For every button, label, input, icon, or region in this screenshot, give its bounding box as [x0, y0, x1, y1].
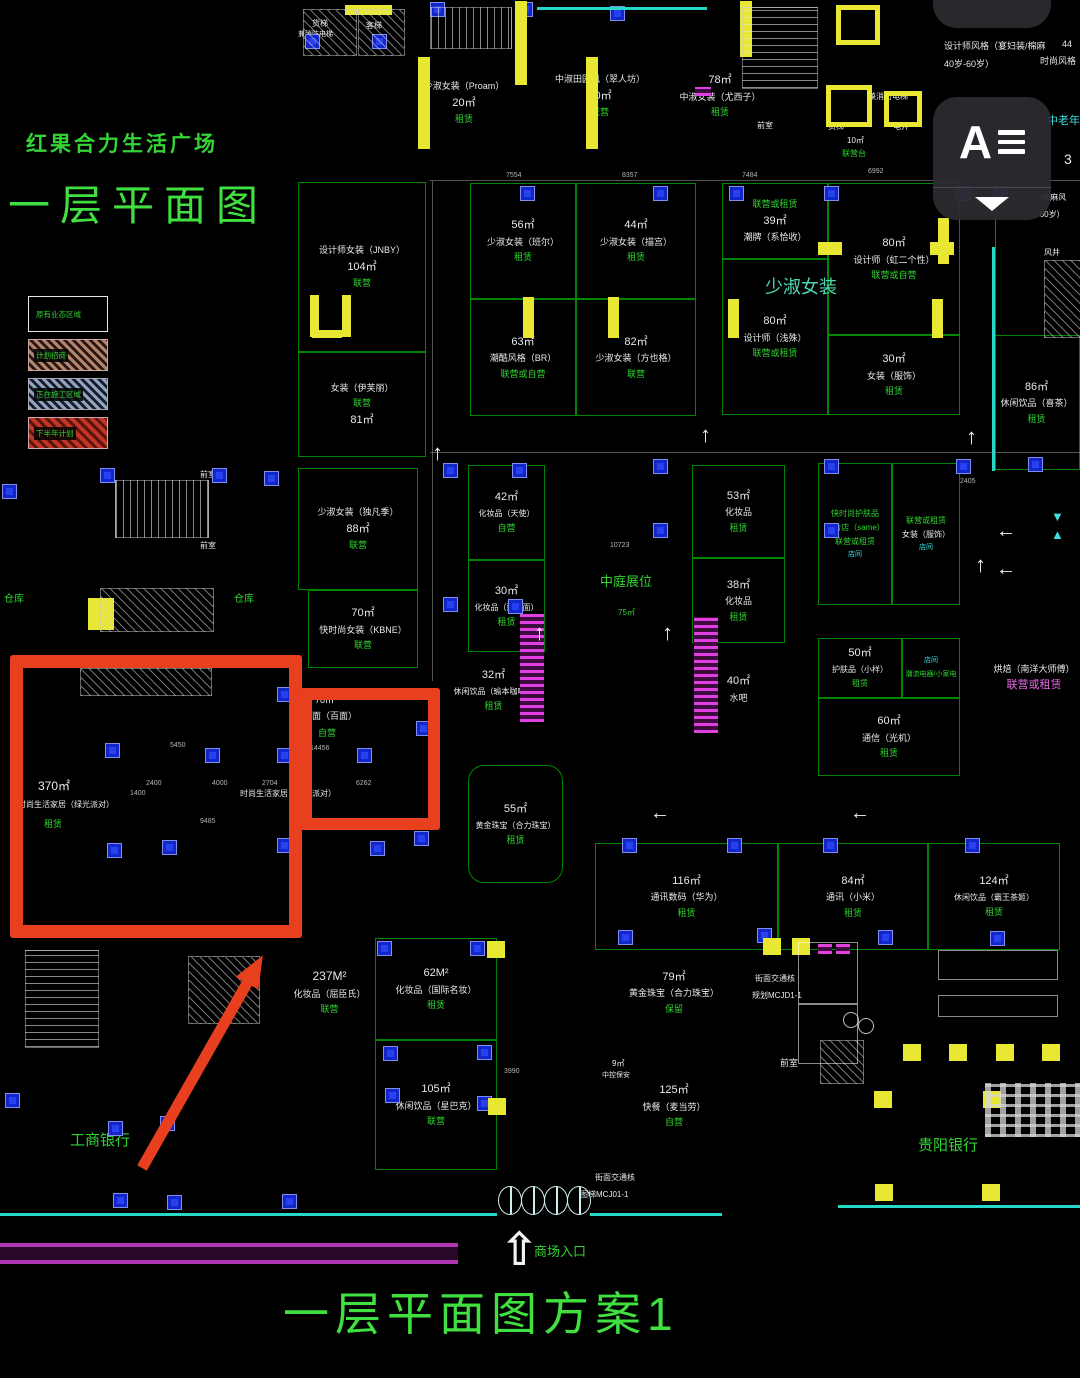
column-yellow [982, 1184, 1000, 1201]
plan-label: 联营台 [842, 150, 866, 159]
wall-segment [818, 242, 842, 255]
revolving-door [521, 1186, 545, 1215]
structural-column [653, 523, 668, 538]
plan-label: 仓库 [4, 594, 24, 605]
storefront-line [590, 1213, 722, 1216]
revolving-door [544, 1186, 568, 1215]
escalator [695, 87, 711, 96]
room: 联营或租赁女装（服饰）店间 [892, 463, 960, 605]
left-arrow-icon: ← [650, 802, 670, 825]
structural-column [470, 941, 485, 956]
up-arrow-icon: ↑ [966, 424, 977, 450]
plan-label: 街面交通核 [755, 975, 795, 984]
structural-column [160, 1116, 175, 1131]
fixture-outline [938, 995, 1058, 1017]
room: 79㎡黄金珠宝（合力珠宝）保留 [595, 945, 753, 1040]
column-yellow [488, 1098, 506, 1115]
room: 70㎡快时尚女装（KBNE）联营 [308, 590, 418, 668]
dimension-text: 7554 [506, 172, 522, 179]
plan-label: 仓库 [234, 594, 254, 605]
plan-label: 44 [1062, 40, 1072, 50]
room: 50㎡护肤品（小样）租赁 [818, 638, 902, 698]
structural-column [622, 838, 637, 853]
room: 42㎡化妆品（天使）自营 [468, 465, 545, 560]
dimension-text: 6992 [868, 168, 884, 175]
structural-column [2, 484, 17, 499]
hatched-area [430, 7, 512, 49]
wall-segment [932, 299, 943, 338]
legend-item: 下半年计划 [28, 417, 108, 449]
hatched-area [188, 956, 260, 1024]
legend: 原有业态区域计划招商正在施工区域下半年计划 [28, 296, 108, 456]
dimension-line [432, 181, 433, 681]
wall-segment [938, 218, 949, 264]
column-yellow [903, 1044, 921, 1061]
plan-label: 规划MCJD1-1 [752, 992, 802, 1001]
dimension-text: 2405 [960, 478, 976, 485]
hatched-area [985, 1083, 1080, 1137]
elevator-shaft [884, 91, 922, 127]
structural-column [618, 930, 633, 945]
plan-label: 40岁-60岁） [944, 60, 994, 70]
room: 82㎡少淑女装（方也格）联营 [576, 299, 696, 416]
up-arrow-icon: ↑ [432, 440, 443, 466]
column-yellow [949, 1044, 967, 1061]
room: 237M²化妆品（屈臣氏）联营 [282, 935, 377, 1050]
hatched-area [100, 588, 214, 632]
room: 55㎡黄金珠宝（合力珠宝）租赁 [468, 765, 563, 883]
structural-column [824, 523, 839, 538]
structural-column [167, 1195, 182, 1210]
fixture-outline [938, 950, 1058, 980]
wall-segment [515, 1, 527, 85]
room: 烘焙（南洋大师傅）联营或租赁 [988, 598, 1080, 758]
structural-column [1028, 457, 1043, 472]
legend-item: 原有业态区域 [28, 296, 108, 332]
wall-segment [586, 57, 598, 149]
plan-label: 设计师风格（宴妇装/棉麻 [944, 42, 1046, 52]
hatched-area [742, 7, 818, 89]
escalator [694, 617, 718, 733]
up-arrow-icon: ↑ [534, 620, 545, 646]
structural-column [5, 1093, 20, 1108]
left-arrow-icon: ← [850, 802, 870, 825]
structural-column [823, 838, 838, 853]
structural-column [512, 463, 527, 478]
room: 84㎡通讯（小米）租赁 [778, 843, 928, 950]
hatched-area [115, 480, 209, 538]
plan-label: ▼ [1051, 510, 1064, 524]
room: 44㎡少淑女装（描宫）租赁 [576, 183, 696, 299]
room: 53㎡化妆品租赁 [692, 465, 785, 558]
elevator-shaft [836, 5, 880, 45]
fixture-circle [843, 1012, 859, 1028]
room: 中淑田园风（翠人坊）60㎡联营 [530, 40, 670, 152]
structural-column [729, 186, 744, 201]
structural-column [477, 1045, 492, 1060]
elevator-shaft [826, 85, 872, 127]
entrance-arrow-icon: ⇧ [500, 1222, 539, 1276]
chevron-down-icon [975, 197, 1009, 211]
structural-column [212, 468, 227, 483]
plan-label: 前室 [757, 122, 773, 131]
plan-label: 前室 [200, 542, 216, 551]
wall-segment [728, 299, 739, 338]
plan-label: 少淑女装 [765, 278, 837, 298]
structural-column [443, 463, 458, 478]
plan-label: 时尚风格（ [1040, 57, 1080, 67]
column-yellow [1042, 1044, 1060, 1061]
dimension-text: 7484 [742, 172, 758, 179]
structural-column [264, 471, 279, 486]
structural-column [965, 838, 980, 853]
structural-column [383, 1046, 398, 1061]
hatched-area [25, 950, 99, 1048]
hatched-area [1044, 260, 1080, 338]
reader-tool-button-partial[interactable] [933, 0, 1051, 28]
plan-label: 中老年 [1047, 115, 1080, 127]
scheme-title: 一层平面图方案1 [283, 1278, 679, 1344]
text-settings-icon[interactable]: A [933, 97, 1051, 188]
plan-label: 商场入口 [534, 1245, 586, 1259]
red-highlight-box-large [10, 655, 302, 938]
storefront-line [838, 1205, 1080, 1208]
structural-column [443, 597, 458, 612]
plan-label: 前室 [780, 1059, 798, 1069]
project-title: 红果合力生活广场 [26, 128, 218, 158]
structural-column [414, 831, 429, 846]
structural-column [878, 930, 893, 945]
column-yellow [874, 1091, 892, 1108]
wall-segment [312, 330, 342, 338]
dimension-line [995, 180, 996, 470]
plan-label: 街面交通核 [595, 1174, 635, 1183]
structural-column [824, 186, 839, 201]
reader-tool-button[interactable]: A [933, 97, 1051, 220]
dimension-text: 8357 [622, 172, 638, 179]
plan-label: ▲ [1051, 528, 1064, 542]
dimension-line [430, 452, 1080, 453]
storefront-line [0, 1213, 497, 1216]
structural-column [990, 931, 1005, 946]
wall-segment [608, 297, 619, 338]
structural-column [508, 599, 523, 614]
legend-item: 正在施工区域 [28, 378, 108, 410]
hatched-area [358, 9, 405, 56]
up-arrow-icon: ↑ [662, 620, 673, 646]
structural-column [520, 186, 535, 201]
structural-column [108, 1121, 123, 1136]
red-highlight-box-small [300, 688, 440, 830]
plan-label: 中庭展位 [600, 575, 652, 589]
revolving-door [498, 1186, 522, 1215]
plan-label: 中控保安 [602, 1072, 630, 1080]
structural-column [113, 1193, 128, 1208]
plan-label: 10㎡ [847, 137, 864, 146]
wall-segment [342, 295, 351, 337]
structural-column [100, 468, 115, 483]
structural-column [370, 841, 385, 856]
structural-column [727, 838, 742, 853]
room: 店间潮流电器/小家电 [902, 638, 960, 698]
room: 86㎡休闲饮品（喜茶）租赁 [993, 335, 1080, 470]
structural-column [282, 1194, 297, 1209]
legend-item: 计划招商 [28, 339, 108, 371]
menu-lines-icon [998, 130, 1025, 154]
collapse-chevron-button[interactable] [933, 188, 1051, 220]
left-arrow-icon: ← [996, 558, 1016, 581]
dimension-text: 10723 [610, 542, 629, 549]
structural-column [956, 459, 971, 474]
column-yellow [996, 1044, 1014, 1061]
column-yellow [487, 941, 505, 958]
plan-label: 75㎡ [618, 609, 635, 618]
room: 少淑女装（独凡季）88㎡联营 [298, 468, 418, 590]
sheet-title: 一层平面图 [8, 172, 268, 233]
left-arrow-icon: ← [996, 520, 1016, 543]
room: 30㎡女装（服饰）租赁 [828, 335, 960, 415]
floor-plan-viewer: 少淑女装（Proam）20㎡租赁中淑田园风（翠人坊）60㎡联营78㎡中淑女装（尤… [0, 0, 1080, 1378]
wall-segment [523, 297, 534, 338]
fixture-circle [858, 1018, 874, 1034]
wall-segment [418, 57, 430, 149]
room: 60㎡通信（光机）租赁 [818, 698, 960, 776]
structural-column [653, 186, 668, 201]
structural-column [653, 459, 668, 474]
up-arrow-icon: ↑ [700, 422, 711, 448]
fixture-outline [798, 942, 858, 1004]
column-yellow [875, 1184, 893, 1201]
up-arrow-icon: ↑ [975, 552, 986, 578]
plan-label: 贵阳银行 [918, 1138, 978, 1155]
plan-label: 3 [1064, 152, 1072, 167]
structural-column [377, 941, 392, 956]
plan-label: 风井 [1044, 249, 1060, 258]
dimension-text: 3990 [504, 1068, 520, 1075]
hatched-area [303, 9, 357, 56]
magenta-strip [0, 1243, 458, 1264]
room: 女装（伊芙丽）联营81㎡ [298, 352, 426, 457]
plan-label: 9㎡ [612, 1060, 624, 1069]
column-yellow [763, 938, 781, 955]
structural-column [824, 459, 839, 474]
revolving-door [567, 1186, 591, 1215]
structural-column [385, 1088, 400, 1103]
storefront-line [537, 7, 707, 10]
